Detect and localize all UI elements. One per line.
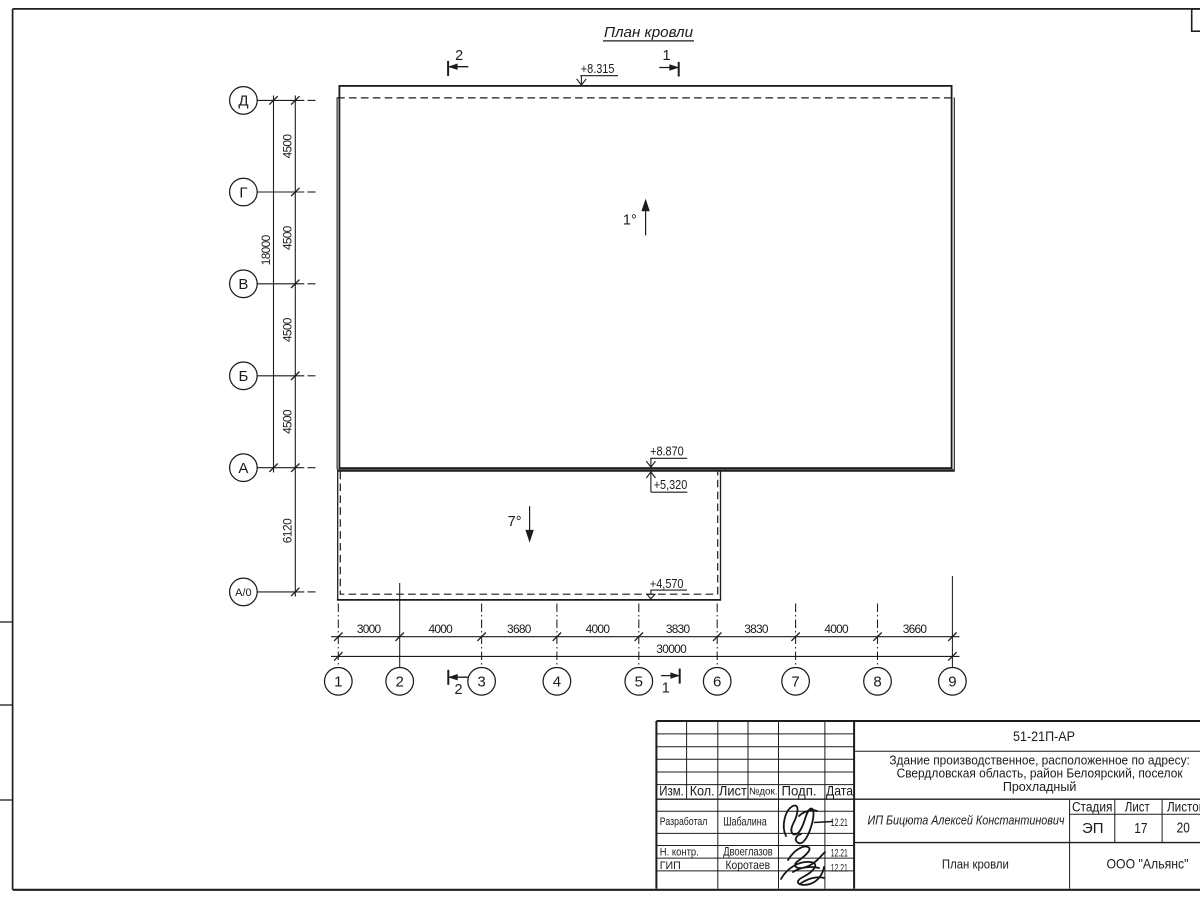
svg-text:Листов: Листов bbox=[1167, 800, 1200, 815]
svg-text:2: 2 bbox=[396, 674, 404, 691]
svg-text:17: 17 bbox=[1134, 821, 1147, 837]
svg-text:ООО "Альянс": ООО "Альянс" bbox=[1107, 857, 1189, 872]
svg-text:4000: 4000 bbox=[428, 622, 453, 636]
svg-text:Кол.: Кол. bbox=[690, 783, 715, 798]
svg-text:3830: 3830 bbox=[744, 622, 769, 636]
svg-text:+8.315: +8.315 bbox=[581, 62, 615, 76]
svg-text:4500: 4500 bbox=[281, 225, 295, 250]
svg-text:План кровли: План кровли bbox=[942, 858, 1009, 872]
svg-text:Д: Д bbox=[238, 93, 248, 110]
svg-text:3830: 3830 bbox=[666, 622, 691, 636]
svg-text:ЭП: ЭП bbox=[1082, 821, 1104, 837]
svg-text:А/0: А/0 bbox=[235, 587, 252, 599]
svg-text:9: 9 bbox=[948, 674, 956, 691]
svg-text:30000: 30000 bbox=[656, 642, 687, 656]
svg-text:4500: 4500 bbox=[281, 134, 295, 159]
svg-text:+5,320: +5,320 bbox=[654, 478, 688, 492]
svg-text:+8.870: +8.870 bbox=[650, 445, 684, 459]
svg-text:7: 7 bbox=[791, 674, 799, 691]
svg-text:6120: 6120 bbox=[281, 518, 295, 543]
svg-text:Подп.: Подп. bbox=[782, 783, 817, 798]
svg-text:Г: Г bbox=[239, 184, 247, 201]
svg-text:Лист: Лист bbox=[719, 783, 747, 798]
svg-text:12.21: 12.21 bbox=[831, 863, 848, 875]
svg-text:8: 8 bbox=[873, 674, 881, 691]
svg-text:1: 1 bbox=[334, 674, 342, 691]
svg-text:2: 2 bbox=[455, 682, 463, 698]
svg-text:Двоеглазов: Двоеглазов bbox=[723, 846, 773, 859]
svg-text:7°: 7° bbox=[508, 514, 522, 530]
svg-text:Н. контр.: Н. контр. bbox=[660, 846, 699, 858]
svg-text:4500: 4500 bbox=[281, 317, 295, 342]
svg-text:В: В bbox=[238, 276, 248, 293]
svg-text:3: 3 bbox=[477, 674, 485, 691]
svg-text:Прохладный: Прохладный bbox=[1003, 779, 1077, 794]
svg-text:4000: 4000 bbox=[586, 622, 611, 636]
svg-text:12.21: 12.21 bbox=[831, 848, 848, 860]
svg-text:Б: Б bbox=[238, 368, 248, 385]
svg-text:18000: 18000 bbox=[259, 234, 273, 265]
svg-text:3000: 3000 bbox=[357, 622, 382, 636]
svg-text:6: 6 bbox=[713, 674, 721, 691]
svg-text:12.21: 12.21 bbox=[831, 817, 848, 829]
svg-text:ИП Бицюта Алексей Константинов: ИП Бицюта Алексей Константинович bbox=[868, 813, 1065, 827]
svg-text:20: 20 bbox=[1177, 821, 1190, 837]
svg-text:Шабалина: Шабалина bbox=[723, 815, 767, 828]
svg-text:№док.: №док. bbox=[749, 787, 778, 798]
svg-text:ГИП: ГИП bbox=[660, 860, 681, 872]
svg-text:5: 5 bbox=[635, 674, 643, 691]
svg-text:4: 4 bbox=[553, 674, 561, 691]
svg-text:51-21П-АР: 51-21П-АР bbox=[1013, 728, 1075, 744]
svg-text:Лист: Лист bbox=[1125, 800, 1150, 815]
svg-text:1: 1 bbox=[663, 48, 671, 64]
svg-text:3680: 3680 bbox=[507, 622, 532, 636]
svg-text:2: 2 bbox=[455, 48, 463, 64]
svg-text:Разработал: Разработал bbox=[660, 816, 708, 828]
svg-text:А: А bbox=[238, 460, 248, 477]
svg-text:1: 1 bbox=[662, 680, 670, 696]
svg-text:Дата: Дата bbox=[826, 783, 853, 798]
svg-text:План кровли: План кровли bbox=[604, 24, 694, 41]
svg-text:4500: 4500 bbox=[281, 409, 295, 434]
svg-text:+4,570: +4,570 bbox=[650, 577, 684, 591]
svg-text:Изм.: Изм. bbox=[659, 783, 684, 798]
svg-text:3660: 3660 bbox=[903, 622, 928, 636]
svg-text:Коротаев: Коротаев bbox=[726, 859, 771, 872]
svg-text:4000: 4000 bbox=[824, 622, 849, 636]
svg-text:1°: 1° bbox=[623, 213, 637, 229]
svg-text:Стадия: Стадия bbox=[1072, 800, 1113, 815]
